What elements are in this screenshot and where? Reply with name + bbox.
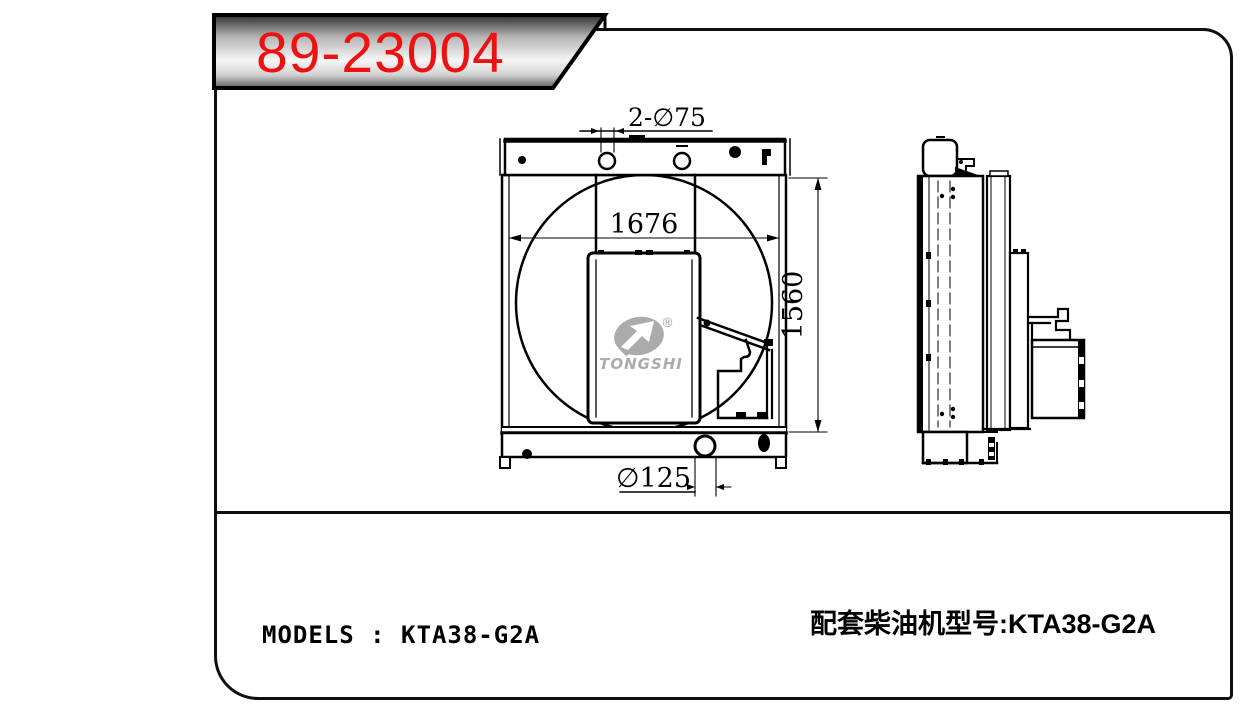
dim-core-height: 1560 [778,271,809,340]
part-number: 89-23004 [256,20,505,86]
dim-holes-label: 2-∅75 [628,103,706,132]
catalog-page: 89-23004 [0,0,1240,716]
section-divider [216,511,1231,514]
front-view [500,135,790,468]
spec-models: MODELS : KTA38-G2A [262,616,664,655]
logo-wordmark: TONGSHI [599,355,683,373]
dim-core-width: 1676 [610,209,679,240]
specs-english: MODELS : KTA38-G2A CORE SIZE : 1560×1676… [262,538,664,716]
spec-engine-model: 配套柴油机型号:KTA38-G2A [810,605,1156,643]
specs-chinese: 配套柴油机型号:KTA38-G2A 配套功率(KW) : 728 直径*中心高 … [810,529,1156,716]
dim-drain-label: ∅125 [616,463,691,494]
mounting-hole-left [599,153,615,169]
mounting-hole-right [674,153,690,169]
side-view [918,137,1085,465]
technical-drawing: ® TONGSHI 2-∅75 1676 1560 [430,95,1130,505]
drain-hole [695,436,715,456]
logo-registered-mark: ® [661,316,674,331]
